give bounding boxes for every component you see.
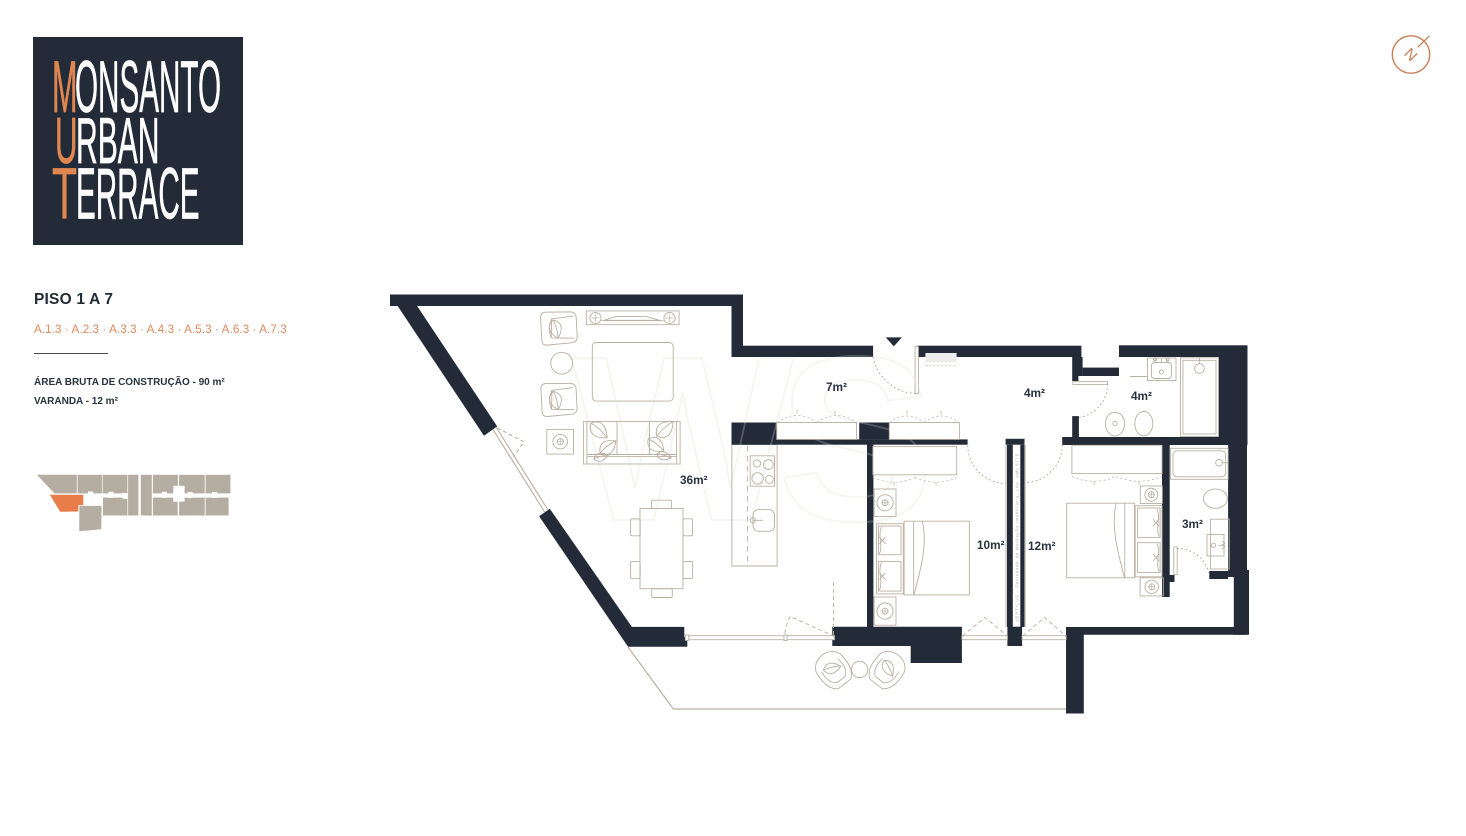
- svg-text:WS: WS: [572, 307, 926, 570]
- svg-text:ERRACE: ERRACE: [76, 155, 200, 235]
- svg-text:T: T: [52, 155, 77, 235]
- svg-text:VERTICUS - Sociedade de Mediaç: VERTICUS - Sociedade de Mediação Imobili…: [1015, 453, 1020, 622]
- svg-text:3m²: 3m²: [1182, 517, 1203, 531]
- svg-text:4m²: 4m²: [1131, 389, 1152, 403]
- svg-text:10m²: 10m²: [977, 538, 1005, 552]
- svg-text:12m²: 12m²: [1028, 539, 1056, 553]
- svg-text:4m²: 4m²: [1024, 386, 1045, 400]
- svg-text:7m²: 7m²: [826, 380, 847, 394]
- svg-text:36m²: 36m²: [680, 473, 708, 487]
- svg-text:N: N: [1400, 45, 1420, 65]
